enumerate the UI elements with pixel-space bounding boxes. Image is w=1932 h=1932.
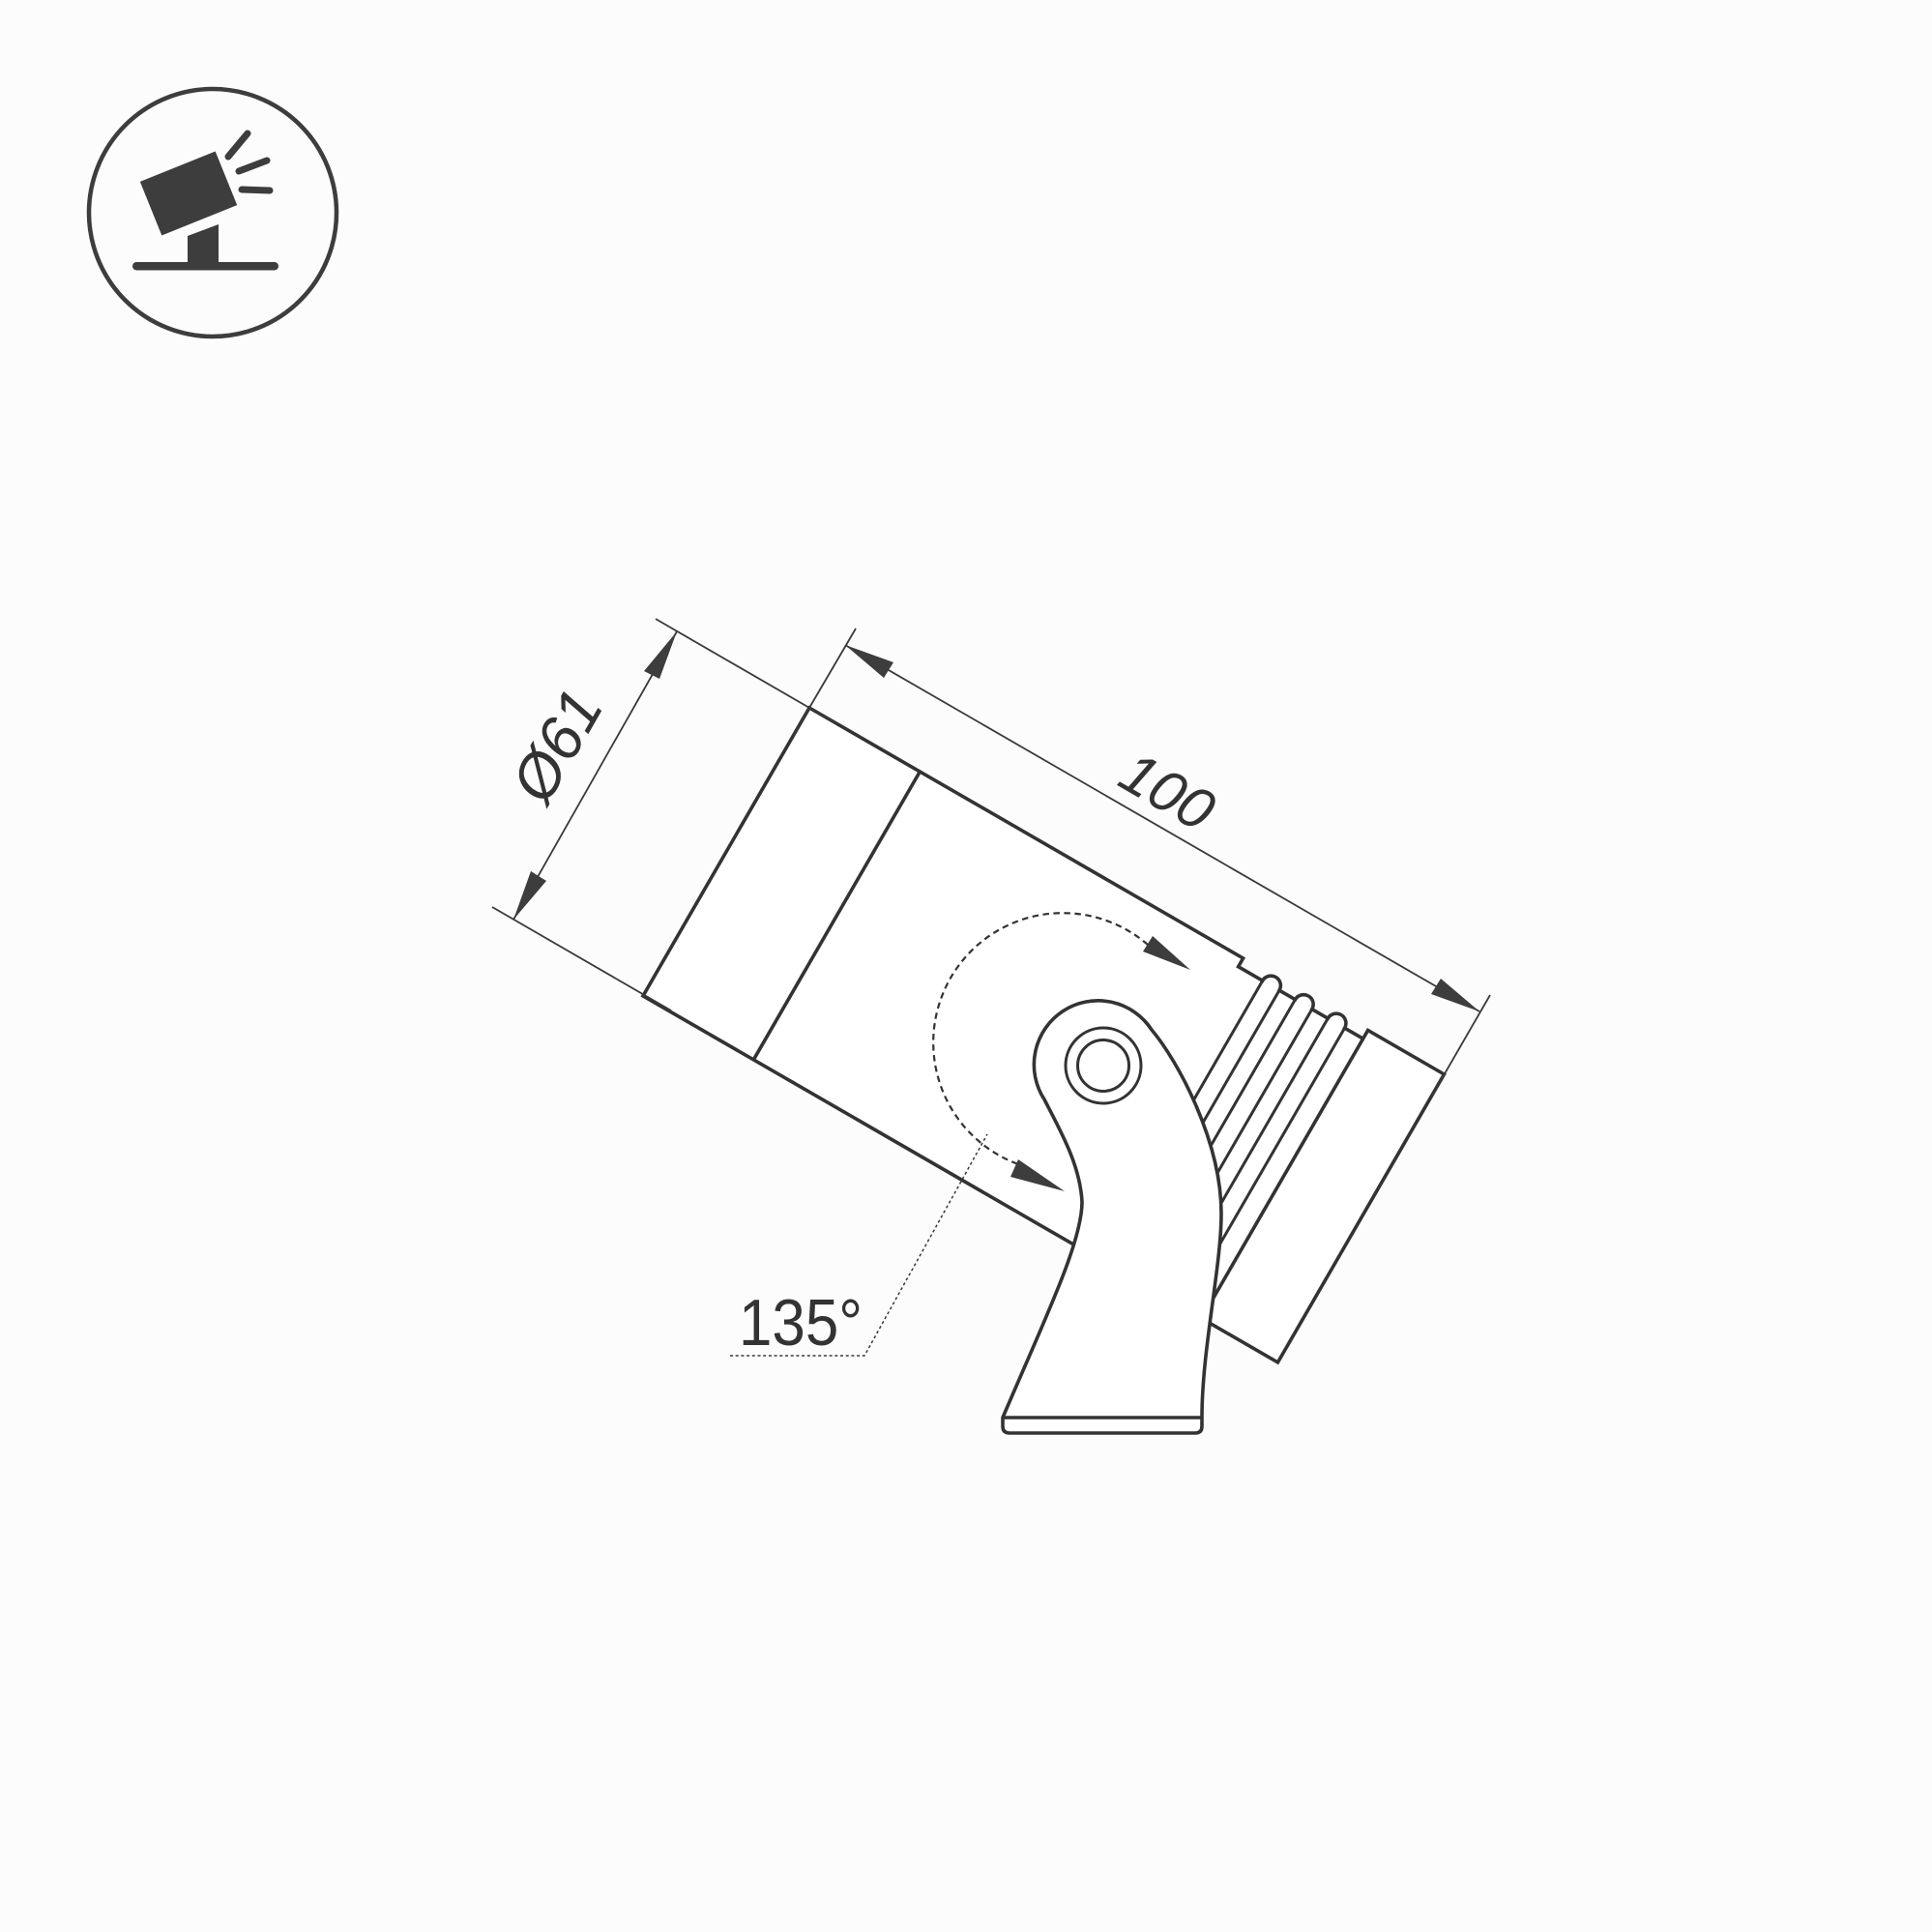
- svg-text:135°: 135°: [739, 1286, 863, 1360]
